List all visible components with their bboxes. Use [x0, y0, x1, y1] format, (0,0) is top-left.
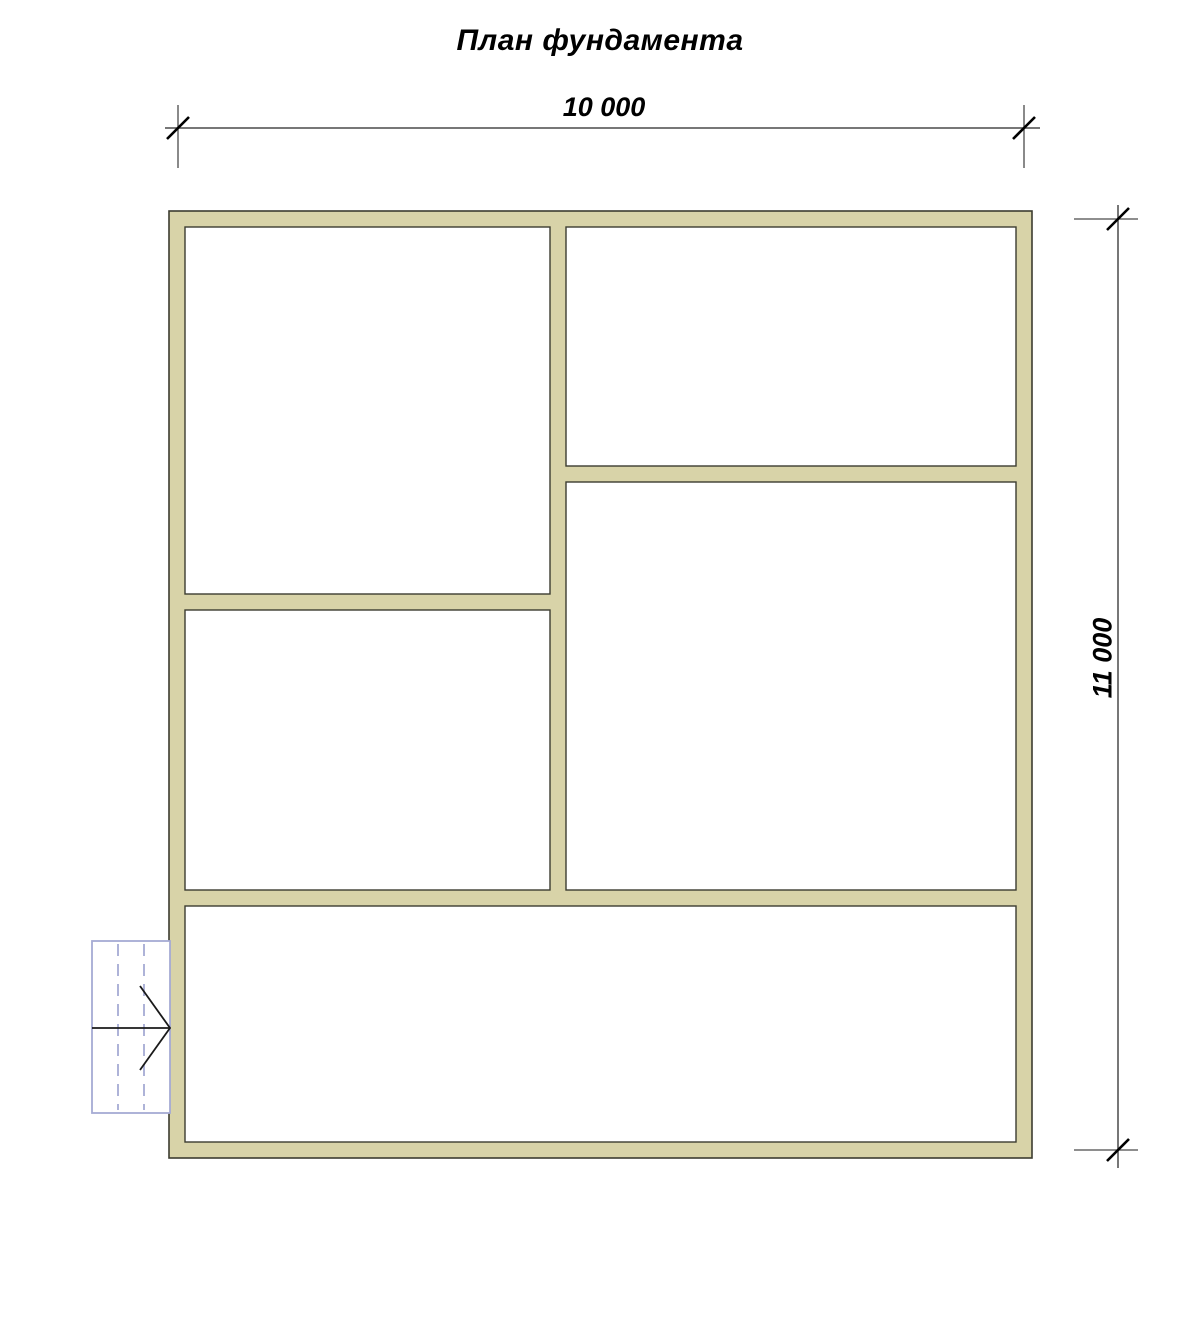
room-middle-right [566, 482, 1016, 890]
stairs-outline [92, 941, 170, 1113]
foundation-plan-page: { "title": "План фундамента", "canvas": … [0, 0, 1200, 1328]
room-top-right [566, 227, 1016, 466]
room-middle-left [185, 610, 550, 890]
room-bottom [185, 906, 1016, 1142]
room-top-left [185, 227, 550, 594]
foundation-plan-drawing [0, 0, 1200, 1328]
